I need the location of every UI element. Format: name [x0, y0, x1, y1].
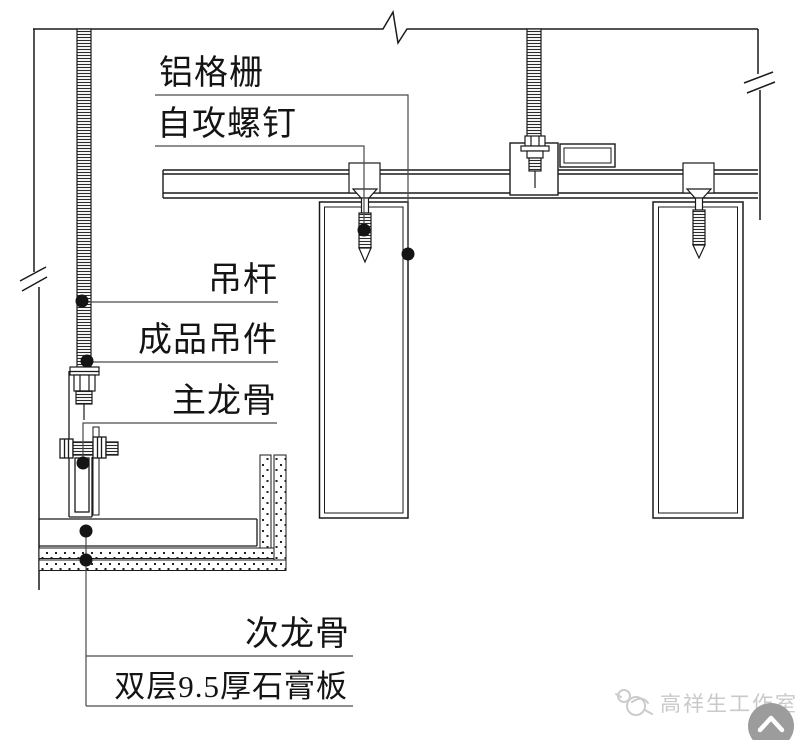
back-to-top-button[interactable]	[748, 703, 794, 740]
callout-self-tapping-screw: 自攻螺钉	[157, 108, 297, 142]
connector-clip-drawing	[560, 144, 615, 167]
chevron-up-icon	[748, 703, 794, 740]
callout-gypsum-board: 双层9.5厚石膏板	[114, 671, 348, 702]
detail-drawing-page: 铝格栅 自攻螺钉 吊杆 成品吊件 主龙骨 次龙骨 双层9.5厚石膏板 高祥生工作…	[0, 0, 797, 740]
callout-hanger-rod: 吊杆	[208, 264, 278, 298]
ceiling-detail-linework	[0, 0, 797, 740]
carrier-rail-drawing	[163, 170, 758, 198]
callout-secondary-runner: 次龙骨	[245, 618, 350, 652]
bird-logo-icon	[612, 686, 654, 720]
callout-main-runner: 主龙骨	[172, 385, 277, 419]
callout-aluminum-grille: 铝格栅	[159, 57, 264, 91]
callout-finished-hanger: 成品吊件	[138, 324, 278, 358]
hanger-rod-right-drawing	[510, 29, 558, 195]
